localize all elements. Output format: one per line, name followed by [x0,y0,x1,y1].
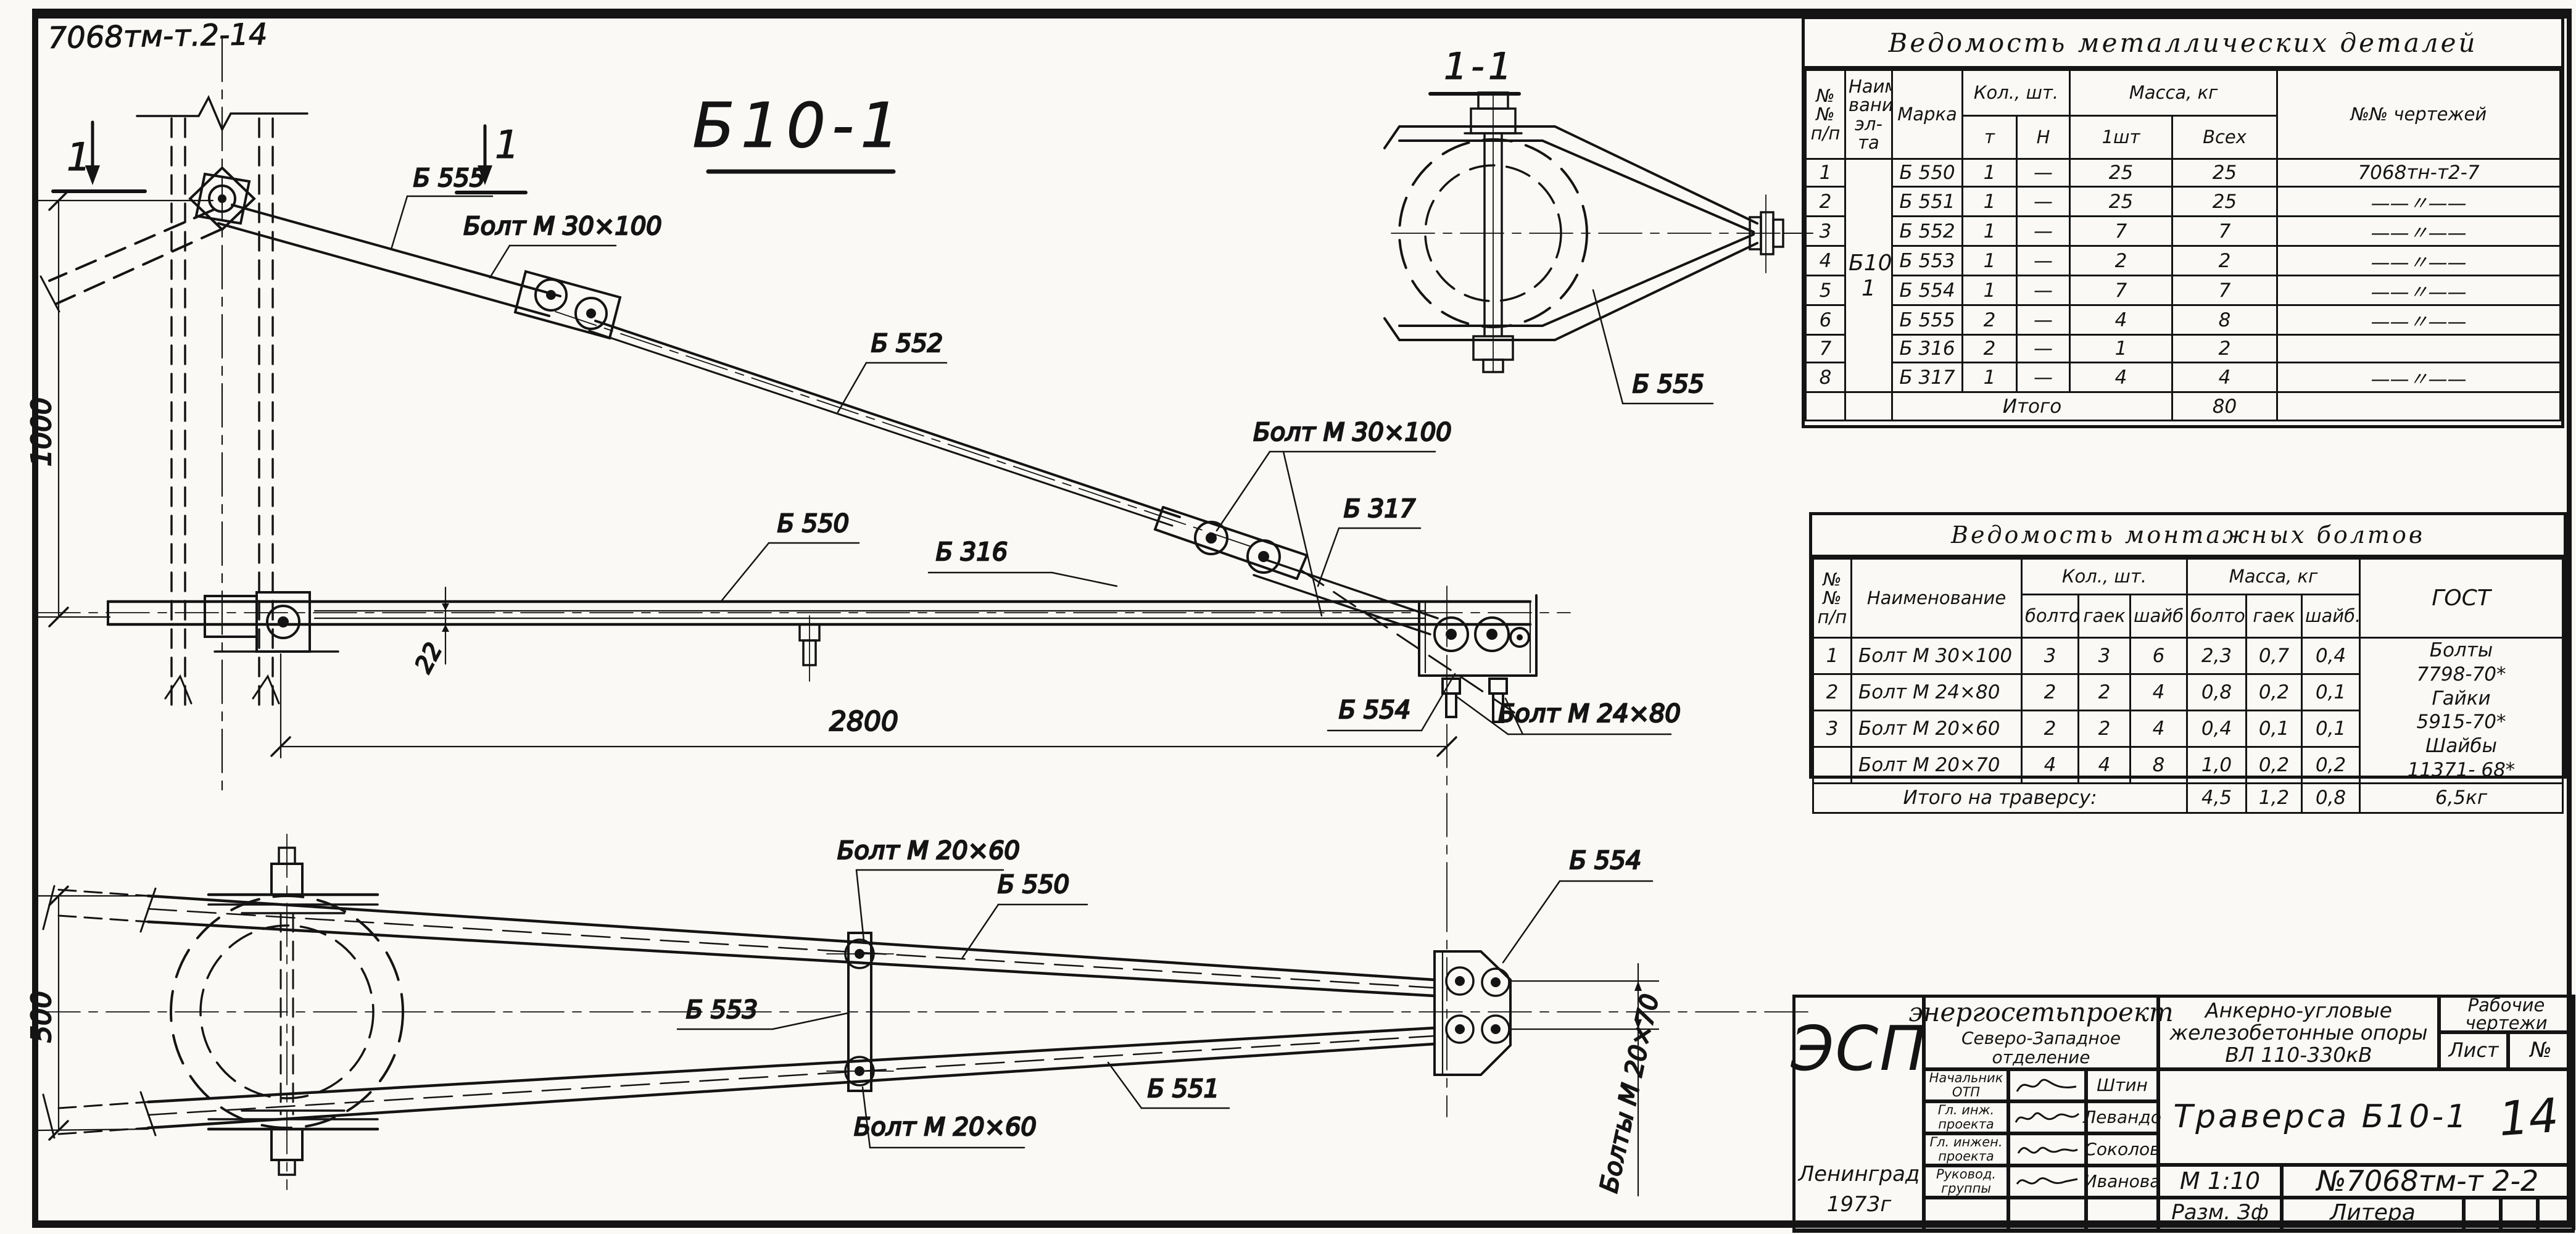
dim-bolts-20x70: Болты М 20×70 [1510,964,1665,1196]
org-city: Ленинград [1799,1163,1920,1186]
col-header-q-nuts: гаек [2079,595,2131,638]
org-branch: Северо-Западное отделение [1924,1029,2158,1067]
gost-cell: Болты7798-70* Гайки5915-70* Шайбы11371- … [2360,638,2563,784]
label-bolt-30x100-b: Болт М 30×100 [1253,418,1451,447]
table-row: 7Б 3162 —12 [1806,335,2561,363]
group-mark-cell: Б10-1 [1845,159,1892,392]
org-name: энергосетьпроект [1908,998,2174,1027]
plan-view: Болты М 20×70 500 Болт М 20×60 Б 550 Б 5… [26,834,1814,1196]
col-header-gost: ГОСТ [2360,559,2563,638]
section-view: 1-1 Б 555 [1385,45,1813,404]
signer-role: НачальникОТП [1922,1067,2010,1103]
bolts-total-mass: 6,5кг [2360,783,2563,813]
label-b554-upper: Б 554 [1339,696,1411,724]
label-b555: Б 555 [413,164,486,193]
table-row: 5Б 5541 —77——〃—— [1806,276,2561,305]
col-header-num: №№п/п [1806,70,1845,159]
org-year: 1973г [1827,1193,1891,1216]
org-name-cell: энергосетьпроект Северо-Западное отделен… [1922,995,2160,1071]
size-cell: Разм. Зф [2156,1196,2284,1230]
beam-end-assembly [1419,586,1536,888]
signature-empty [2007,1196,2088,1230]
col-header-name: Наимено-ваниеэл-та [1845,70,1892,159]
scale-cell: М 1:10 [2156,1163,2284,1199]
litera-sub-cell [2462,1196,2503,1230]
col-header-m-wash: шайб. [2302,595,2360,638]
svg-text:1: 1 [495,122,519,167]
table-total-row: Итого на траверсу: 4,51,20,8 6,5кг [1813,783,2563,813]
elevation-labels: Б 555 Болт М 30×100 Б 552 Б 550 Б 316 Бо… [391,164,1681,734]
col-header-mark: Марка [1892,70,1963,159]
signature [2007,1132,2088,1167]
col-header-qty-m: т [1963,116,2017,159]
table-total-row: Итого 80 [1806,392,2561,421]
signature [2007,1164,2088,1199]
pole-elevation [137,38,307,793]
col-header-mass: Масса, кг [2187,559,2360,595]
svg-text:Б10-1: Б10-1 [692,89,906,162]
parts-table-grid: №№п/п Наимено-ваниеэл-та Марка Кол., шт.… [1805,69,2561,421]
signer-name: Штин [2084,1067,2160,1103]
elevation-view: 1000 2800 22 1 1 [26,38,1681,888]
dim-1000-text: 1000 [26,397,57,466]
col-header-qty: Кол., шт. [1963,70,2070,116]
col-header-mass-1: 1шт [2070,116,2172,159]
table-row: 4Б 5531 —22——〃—— [1806,246,2561,276]
label-b550-upper: Б 550 [777,510,850,538]
svg-text:1-1: 1-1 [1444,45,1515,88]
litera-sub-cell [2536,1196,2575,1230]
bolts-total-label: Итого на траверсу: [1813,783,2187,813]
section-title: 1-1 [1430,45,1519,94]
org-logo-cell: ЭСП Ленинград 1973г [1792,995,1926,1230]
signer-role: Руковод.группы [1922,1164,2010,1199]
col-header-qty-n: Н [2017,116,2070,159]
signer-role: Гл. инжен.проекта [1922,1132,2010,1167]
litera-cell: Литера [2280,1196,2466,1230]
section-cut-mark-left: 1 [53,122,145,191]
link-b317 [1254,558,1438,634]
label-b551: Б 551 [1148,1075,1220,1103]
sheet-label-cell: Лист [2437,1030,2510,1071]
label-bolts-20x70: Болты М 20×70 [1595,992,1665,1195]
dim-2800-text: 2800 [829,706,898,737]
label-bolt-30x100-a: Болт М 30×100 [463,212,661,241]
label-b316: Б 316 [936,538,1008,566]
col-header-dwg: №№ чертежей [2277,70,2561,159]
org-logo: ЭСП [1791,1015,1928,1083]
col-header-q-bolts: болтов [2022,595,2079,638]
col-header-m-bolts: болтов [2187,595,2247,638]
table-row: 6Б 5552 —48——〃—— [1806,305,2561,335]
col-header-q-wash: шайб [2131,595,2187,638]
svg-text:1: 1 [67,135,91,180]
parts-table: Ведомость металлических деталей №№п/п На… [1802,16,2564,428]
col-header-num: №№п/п [1813,559,1852,638]
bolts-table: Ведомость монтажных болтов №№п/п Наимено… [1809,512,2567,779]
label-b552: Б 552 [871,329,943,358]
drawing-title-cell: Траверса Б10-1 14 [2156,1067,2575,1167]
bolts-table-title: Ведомость монтажных болтов [1812,515,2564,558]
corner-code: 7068тм-т.2-14 [48,17,268,56]
col-header-mass-all: Всех [2172,116,2277,159]
title-block: ЭСП Ленинград 1973г энергосетьпроект Сев… [1792,995,2575,1233]
table-row: 8Б 3171 —44——〃—— [1806,363,2561,392]
signer-role-empty [1922,1196,2010,1230]
table-row: 2Б 5511 —2525——〃—— [1806,187,2561,217]
litera-sub-cell [2499,1196,2540,1230]
drawing-title: Траверса Б10-1 [2173,1099,2469,1135]
signature [2007,1067,2088,1103]
col-header-mass: Масса, кг [2070,70,2277,116]
far-brace-dashed [41,210,221,312]
dim-2800: 2800 [271,654,1456,758]
table-row: 1 Б10-1 Б 5501— 25257068тн-т2-7 [1806,159,2561,187]
label-b554-lower: Б 554 [1570,847,1642,875]
col-header-m-nuts: гаек [2247,595,2302,638]
doc-kind-cell: Рабочиечертежи [2437,995,2575,1034]
label-b317: Б 317 [1344,495,1416,523]
doc-number-cell: №7068тм-т 2-2 [2280,1163,2575,1199]
signature [2007,1099,2088,1135]
table-row: 1Болт М 30×100 336 2,30,70,4 Болты7798-7… [1813,638,2563,674]
col-header-qty: Кол., шт. [2022,559,2187,595]
section-label-b555: Б 555 [1593,290,1713,404]
svg-text:Б 555: Б 555 [1633,370,1705,399]
sheet-number-cell: № [2506,1030,2575,1071]
parts-total-value: 80 [2172,392,2277,421]
page-note-handwritten: 14 [2497,1089,2560,1145]
signer-role: Гл. инж.проекта [1922,1099,2010,1135]
apex-joint [190,168,254,230]
main-view-title: Б10-1 [692,89,906,172]
label-b550-lower: Б 550 [998,871,1070,899]
label-b553: Б 553 [686,996,758,1024]
dim-22-text: 22 [410,638,448,677]
bolts-table-grid: №№п/п Наименование Кол., шт. Масса, кг Г… [1812,558,2564,814]
end-plate-b554 [1435,888,1510,1117]
parts-total-label: Итого [1892,392,2172,421]
signer-name: Иванова [2084,1164,2160,1199]
table-row: 3Б 5521 —77——〃—— [1806,217,2561,246]
label-bolt-20x60-bottom: Болт М 20×60 [854,1113,1037,1141]
dim-500-text: 500 [26,991,57,1043]
col-header-name: Наименование [1852,559,2022,638]
signer-name-empty [2084,1196,2160,1230]
signer-name: Левандо [2084,1099,2160,1135]
signer-name: Соколов [2084,1132,2160,1167]
label-bolt-20x60-top: Болт М 20×60 [837,837,1020,865]
project-title-cell: Анкерно-угловые железобетонные опоры ВЛ … [2156,995,2441,1071]
parts-table-title: Ведомость металлических деталей [1805,19,2561,69]
label-bolt-24x80: Болт М 24×80 [1498,700,1681,728]
